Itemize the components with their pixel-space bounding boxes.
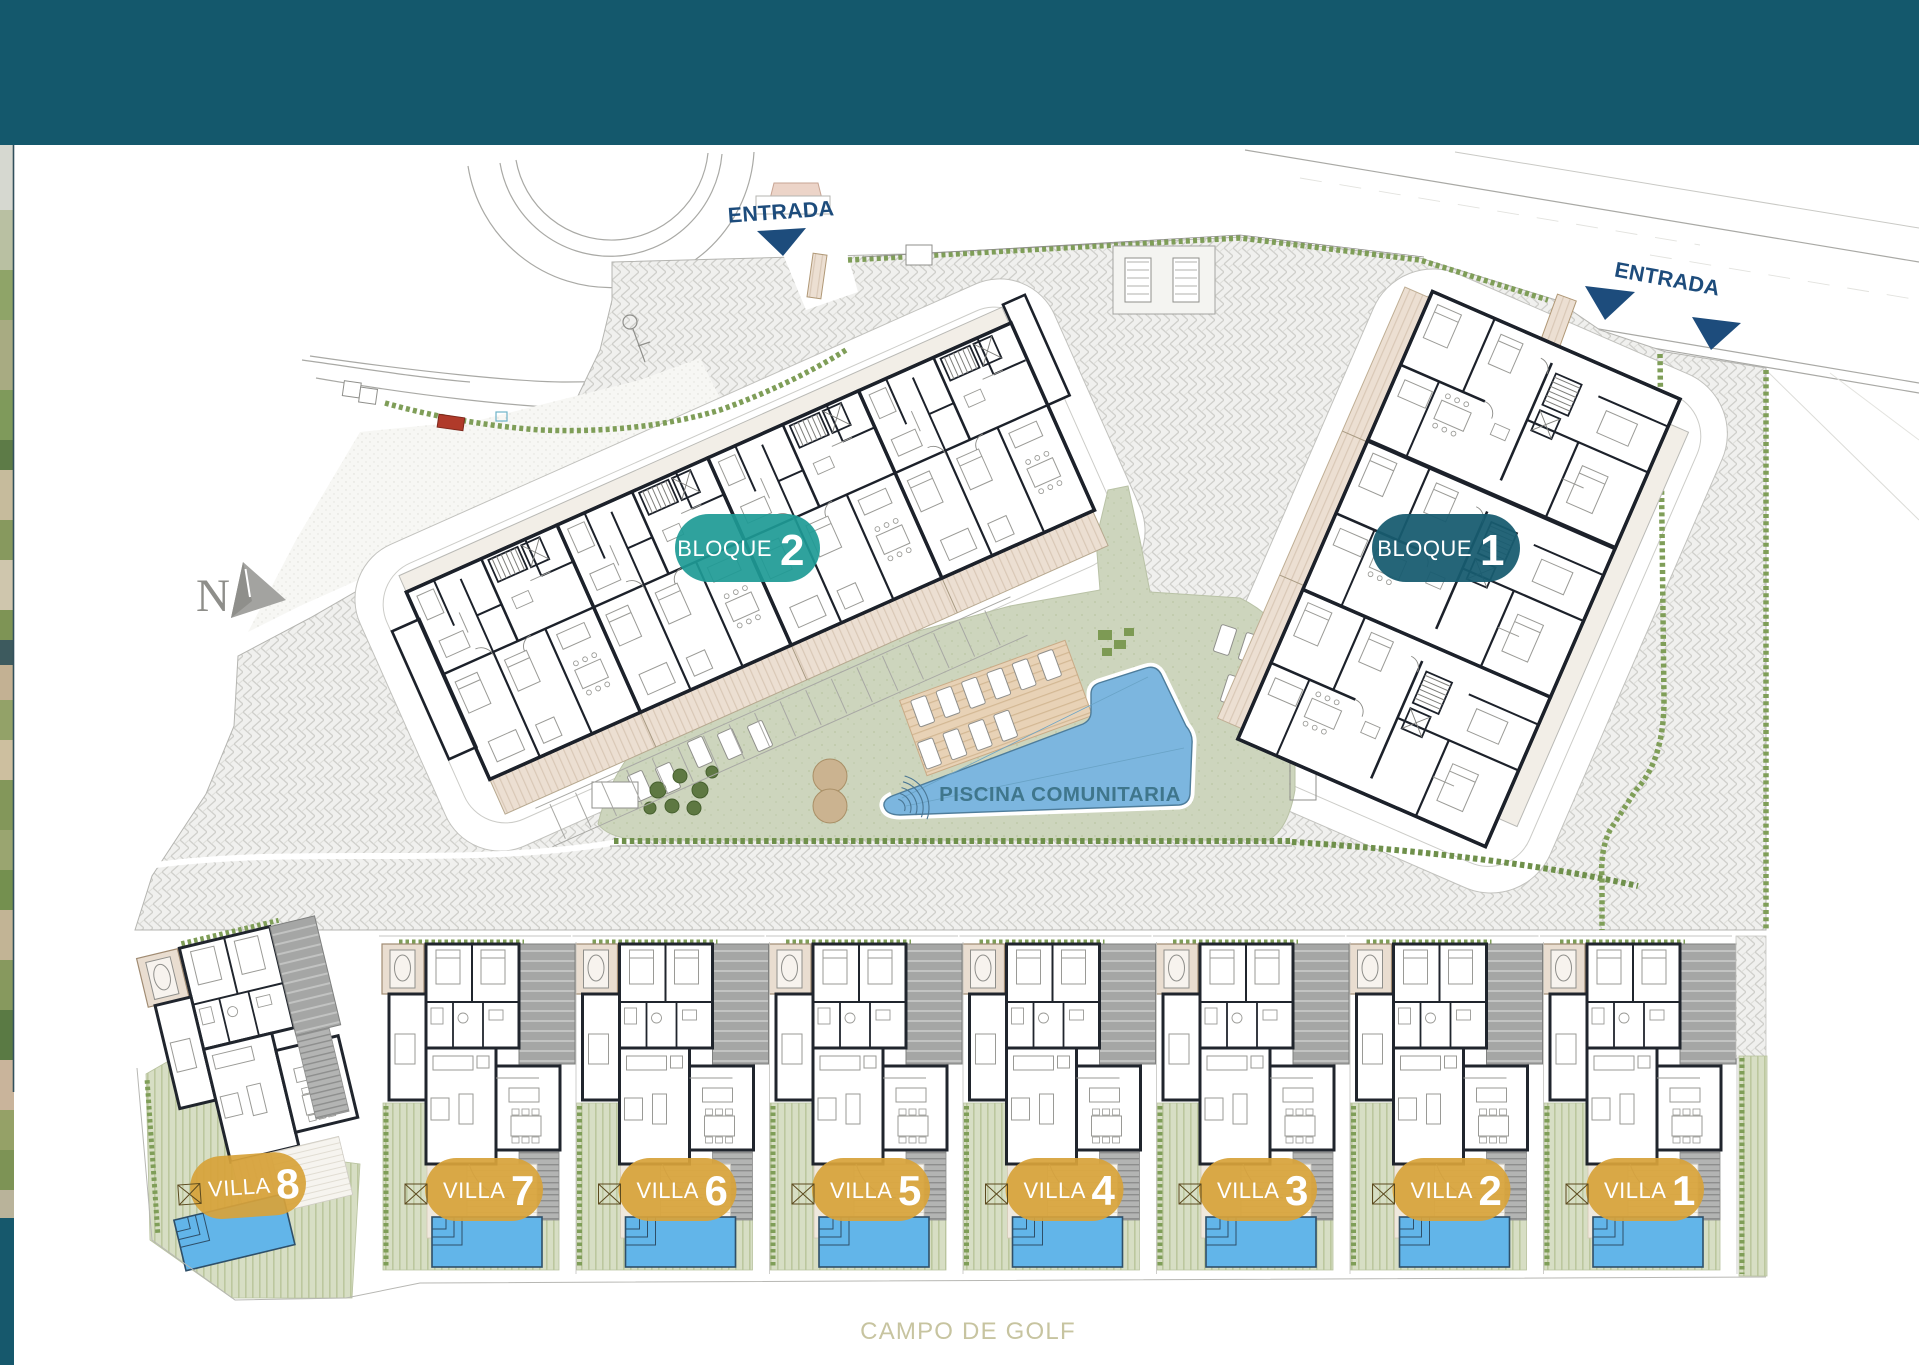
svg-text:BLOQUE: BLOQUE — [677, 536, 772, 561]
svg-text:6: 6 — [705, 1167, 728, 1214]
svg-text:N: N — [196, 570, 230, 622]
svg-text:VILLA: VILLA — [443, 1178, 505, 1203]
svg-text:8: 8 — [274, 1160, 301, 1209]
svg-text:PISCINA COMUNITARIA: PISCINA COMUNITARIA — [939, 783, 1181, 806]
svg-text:VILLA: VILLA — [207, 1173, 271, 1202]
svg-text:3: 3 — [1285, 1167, 1308, 1214]
svg-text:5: 5 — [898, 1167, 921, 1214]
svg-text:VILLA: VILLA — [1024, 1178, 1086, 1203]
svg-text:4: 4 — [1092, 1167, 1116, 1214]
svg-text:BLOQUE: BLOQUE — [1377, 536, 1472, 561]
svg-text:VILLA: VILLA — [637, 1178, 699, 1203]
svg-text:1: 1 — [1672, 1167, 1695, 1214]
svg-text:CAMPO DE GOLF: CAMPO DE GOLF — [860, 1318, 1076, 1345]
svg-text:2: 2 — [780, 526, 804, 575]
svg-text:VILLA: VILLA — [1604, 1178, 1666, 1203]
svg-text:2: 2 — [1479, 1167, 1502, 1214]
svg-text:VILLA: VILLA — [1411, 1178, 1473, 1203]
svg-text:VILLA: VILLA — [1217, 1178, 1279, 1203]
svg-text:7: 7 — [511, 1167, 534, 1214]
svg-text:VILLA: VILLA — [830, 1178, 892, 1203]
svg-text:1: 1 — [1480, 526, 1504, 575]
